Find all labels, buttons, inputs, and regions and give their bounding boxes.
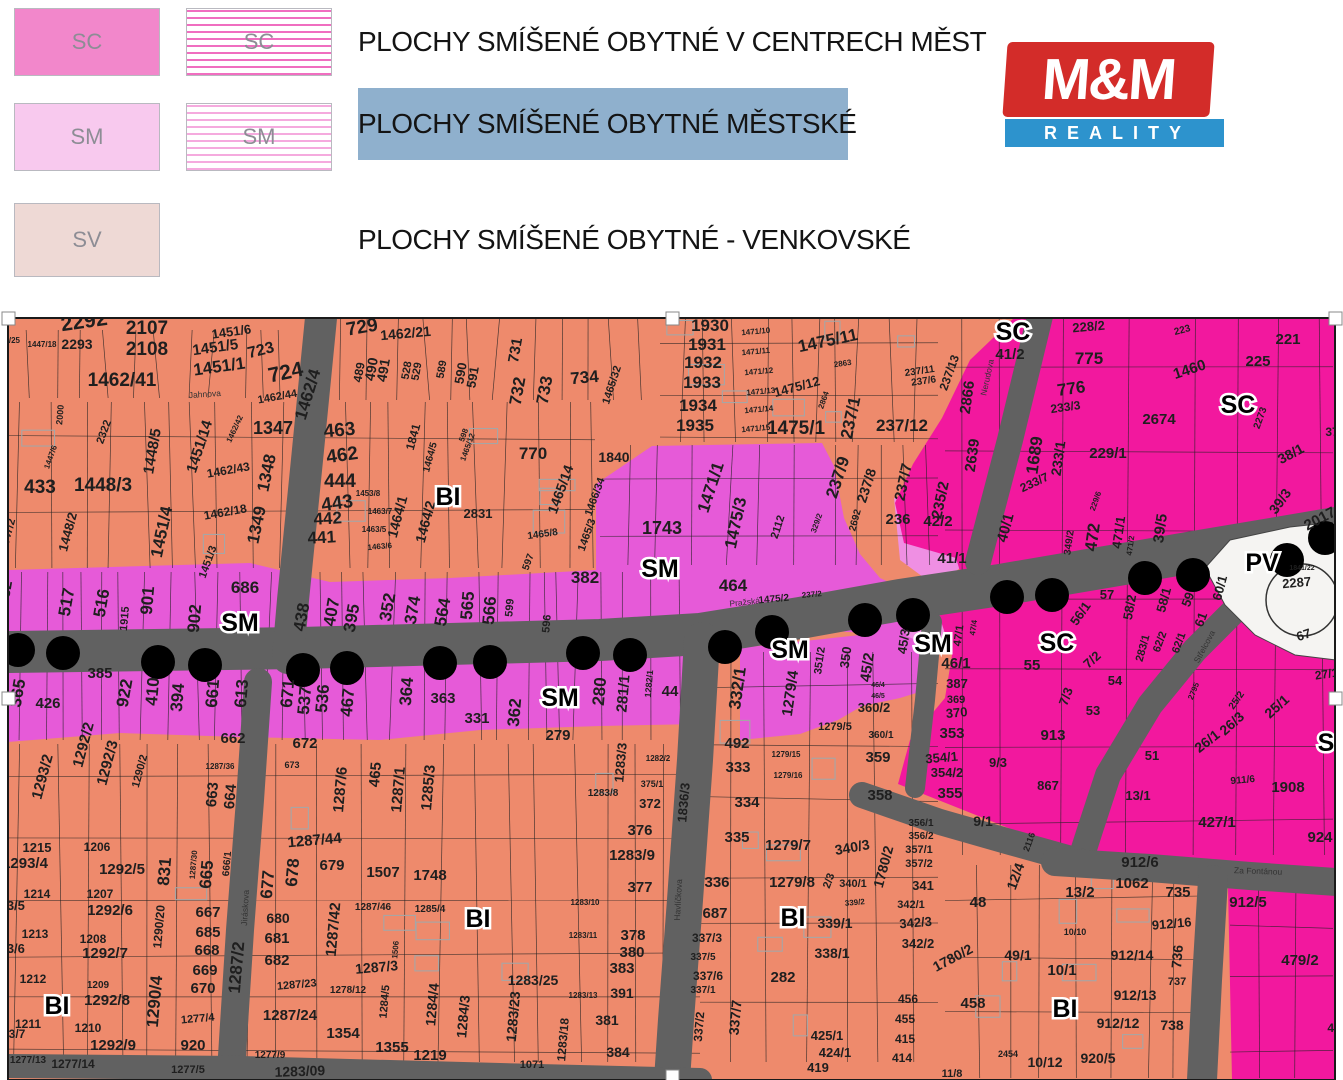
selection-handle[interactable] (1329, 692, 1342, 705)
parcel-number: 378 (620, 927, 645, 944)
parcel-number: 363 (430, 690, 455, 707)
parcel-number: 924 (1307, 829, 1333, 846)
parcel-number: 42/2 (923, 513, 952, 530)
parcel-number: 336 (704, 874, 729, 891)
zone-code-label: SM (541, 684, 579, 712)
transit-stop-dot (1176, 558, 1210, 592)
parcel-number: 911/6 (1230, 774, 1256, 787)
parcel-number: 463 (323, 419, 356, 443)
parcel-number: 13/2 (1065, 884, 1094, 901)
zone-code-label: SC (1221, 391, 1256, 419)
parcel-number: 384 (606, 1044, 630, 1060)
parcel-number: 668 (194, 942, 219, 959)
parcel-number: 770 (519, 444, 547, 463)
parcel-number: 1277/14 (51, 1057, 95, 1071)
parcel-number: 433 (24, 477, 56, 498)
parcel-number: 10/1 (1047, 962, 1076, 979)
parcel-number: 381 (595, 1012, 619, 1028)
parcel-number: 685 (195, 924, 220, 941)
parcel-number: 237/2 (801, 589, 822, 600)
parcel-number: 1285/4 (415, 904, 446, 915)
parcel-number: 53 (1086, 703, 1100, 718)
parcel-number: 1507 (366, 864, 399, 881)
transit-stop-dot (1035, 578, 1069, 612)
parcel-number: 599 (503, 598, 517, 617)
zone-code-label: BI (466, 905, 491, 933)
parcel-number: 1062 (1115, 875, 1148, 892)
parcel-number: 342/2 (902, 936, 935, 951)
parcel-number: 341 (912, 878, 934, 893)
parcel-number: 1743 (642, 518, 682, 538)
parcel-number: 41/1 (937, 550, 966, 567)
parcel-number: 17/25 (0, 336, 21, 345)
parcel-number: 49/1 (1004, 947, 1031, 963)
parcel-number: 735 (1165, 884, 1190, 901)
parcel-number: 279 (545, 727, 570, 744)
zone-code-label: SM (771, 636, 809, 664)
parcel-number: 901 (137, 586, 158, 616)
parcel-number: 355 (937, 785, 962, 802)
parcel-number: 1463/5 (362, 525, 387, 534)
parcel-number: 902 (184, 604, 205, 634)
transit-stop-dot (330, 651, 364, 685)
parcel-number: 229/1 (1089, 445, 1127, 462)
parcel-number: 46/5 (871, 693, 885, 700)
parcel-number: 2674 (1142, 411, 1176, 428)
parcel-number: 1506 (390, 940, 401, 959)
parcel-number: 387 (946, 676, 968, 691)
parcel-number: 1071 (520, 1059, 544, 1071)
parcel-number: 1292/6 (87, 902, 133, 919)
transit-stop-dot (1128, 561, 1162, 595)
parcel-number: 442 (313, 508, 342, 528)
parcel-number: 337/7 (726, 999, 745, 1036)
parcel-number: 1908 (1271, 779, 1304, 796)
parcel-number: 377 (627, 879, 652, 896)
zone-code-label: PV (1245, 549, 1279, 577)
parcel-number: 354/1 (925, 749, 959, 767)
parcel-number: 920 (180, 1037, 205, 1054)
parcel-number: 357/2 (905, 858, 933, 870)
parcel-number: 455 (895, 1012, 915, 1026)
parcel-number: 1934 (679, 396, 717, 415)
parcel-number: 228/2 (1072, 318, 1106, 336)
parcel-number: 1933 (683, 373, 721, 392)
parcel-number: 444 (324, 471, 356, 492)
parcel-number: 1355 (375, 1039, 408, 1056)
parcel-number: 679 (319, 857, 344, 874)
parcel-number: 1931 (688, 335, 726, 354)
parcel-number: 337/1 (690, 985, 715, 996)
parcel-number: 1287/24 (263, 1007, 318, 1024)
parcel-number: 479/2 (1281, 952, 1319, 969)
parcel-number: 734 (570, 367, 600, 388)
transit-stop-dot (1, 633, 35, 667)
parcel-number: 462 (325, 443, 359, 468)
parcel-number: 2287 (1282, 574, 1312, 591)
parcel-number: 666/1 (221, 850, 234, 876)
parcel-number: 1283/8 (588, 788, 619, 799)
parcel-number: 331 (464, 710, 489, 727)
parcel-number: 680 (266, 910, 290, 926)
road-912-down (1202, 880, 1213, 1080)
parcel-number: 356/1 (908, 818, 933, 829)
parcel-number: 2831 (464, 506, 493, 521)
parcel-number: 1935 (676, 416, 714, 435)
zoning-map[interactable]: 17/251447/1822922293210721081451/61451/5… (0, 0, 1343, 1080)
parcel-number: 1287/46 (355, 902, 392, 913)
parcel-number: 337/2 (691, 1011, 708, 1042)
parcel-number: 340/1 (839, 878, 867, 890)
parcel-number: 1283/13 (569, 991, 598, 1000)
parcel-number: 335 (724, 829, 749, 846)
parcel-number: 46/4 (871, 682, 885, 689)
page: SC SC PLOCHY SMÍŠENÉ OBYTNÉ V CENTRECH M… (0, 0, 1343, 1080)
parcel-number: 1207 (87, 887, 114, 901)
parcel-number: 1347 (253, 418, 293, 438)
parcel-number: 337/6 (693, 969, 723, 983)
parcel-number: 362 (504, 698, 525, 728)
parcel-number: 1462/41 (88, 370, 157, 391)
transit-stop-dot (566, 636, 600, 670)
zone-code-label: SC (1318, 729, 1343, 757)
zone-code-label: BI (45, 992, 70, 1020)
parcel-number: 831 (154, 857, 175, 887)
parcel-number: 2454 (998, 1049, 1018, 1059)
parcel-number: 678 (282, 858, 303, 888)
transit-stop-dot (990, 580, 1024, 614)
parcel-number: 55 (1024, 657, 1041, 674)
parcel-number: 339/1 (817, 915, 852, 931)
parcel-number: 775 (1075, 349, 1103, 368)
parcel-number: 492 (724, 735, 749, 752)
transit-stop-dot (141, 645, 175, 679)
parcel-number: 1209 (87, 980, 110, 991)
parcel-number: 10/10 (1064, 927, 1087, 937)
parcel-number: 280 (589, 677, 610, 707)
parcel-number: 426 (35, 695, 60, 712)
parcel-number: 333 (725, 759, 750, 776)
parcel-number: 1292/5 (99, 861, 145, 878)
parcel-number: 237/12 (876, 416, 928, 435)
parcel-number: 737 (1168, 976, 1186, 988)
parcel-number: 464 (719, 576, 748, 595)
parcel-number: 669 (192, 962, 217, 979)
parcel-number: 1279/16 (774, 771, 803, 780)
parcel-number: 1293/7 (0, 1027, 26, 1041)
parcel-number: 1287/36 (206, 762, 235, 771)
parcel-number: 1293/5 (0, 898, 25, 913)
parcel-number: 912/13 (1114, 987, 1157, 1003)
transit-stop-dot (613, 638, 647, 672)
transit-stop-dot (473, 645, 507, 679)
parcel-number: 1277/9 (255, 1050, 286, 1061)
parcel-number: 441 (307, 527, 336, 547)
parcel-number: 681 (264, 930, 289, 947)
zone-code-label: SC (996, 318, 1031, 346)
zone-code-label: SM (221, 609, 259, 637)
parcel-number: 661 (202, 679, 223, 709)
zone-code-label: SM (914, 630, 952, 658)
parcel-number: 1277/5 (171, 1064, 205, 1076)
selection-handle[interactable] (666, 312, 679, 325)
parcel-number: 1279/15 (772, 750, 801, 759)
parcel-number: 1447/18 (28, 340, 57, 349)
parcel-number: 677 (257, 870, 278, 900)
parcel-number: 414 (892, 1051, 912, 1065)
parcel-number: 867 (1037, 778, 1059, 793)
parcel-number: 1292/7 (82, 945, 128, 962)
parcel-number: 1214 (24, 887, 51, 901)
transit-stop-dot (848, 603, 882, 637)
parcel-number: 913 (1040, 727, 1065, 744)
parcel-number: 1292/8 (84, 992, 130, 1009)
parcel-number: 662 (220, 730, 245, 747)
parcel-number: 1283/9 (609, 847, 655, 864)
parcel-number: 427/1 (1198, 814, 1236, 831)
parcel-number: 1293/6 (0, 941, 25, 956)
parcel-number: 1283/11 (569, 931, 598, 940)
parcel-number: 391 (610, 985, 634, 1001)
parcel-number: 1208 (80, 932, 107, 946)
parcel-number: 1210 (75, 1021, 102, 1035)
parcel-number: 364 (396, 676, 417, 706)
zone-code-label: BI (436, 483, 461, 511)
parcel-number: 687 (702, 905, 727, 922)
parcel-number: 337/3 (692, 931, 722, 945)
parcel-number: 334 (734, 794, 760, 811)
parcel-number: 383 (609, 960, 634, 977)
parcel-number: 425/1 (811, 1028, 844, 1043)
parcel-number: 54 (1108, 673, 1123, 688)
parcel-number: 419 (807, 1060, 829, 1075)
parcel-number: 1354 (326, 1025, 360, 1042)
zone-code-label: BI (781, 904, 806, 932)
selection-handle[interactable] (2, 692, 15, 705)
parcel-number: 613 (231, 679, 252, 709)
street-name: Jiráskova (239, 889, 251, 926)
parcel-number: 1215 (23, 840, 52, 855)
parcel-number: 1915 (118, 606, 132, 631)
parcel-number: 370 (945, 704, 968, 721)
parcel-number: 415 (895, 1032, 915, 1046)
parcel-number: 394 (167, 682, 188, 712)
parcel-number: 13/1 (1125, 788, 1150, 803)
parcel-number: 41/2 (995, 346, 1024, 363)
parcel-number: 339/2 (844, 897, 865, 908)
parcel-number: 1283/09 (274, 1062, 325, 1080)
parcel-number: 9/1 (973, 813, 993, 829)
parcel-number: 682 (264, 952, 289, 969)
parcel-number: 359 (865, 749, 890, 766)
zone-code-label: BI (1053, 995, 1078, 1023)
parcel-number: 342/1 (897, 899, 925, 911)
parcel-number: 1279/7 (765, 837, 811, 854)
selection-handle[interactable] (1329, 312, 1342, 325)
parcel-number: 356/2 (908, 831, 933, 842)
parcel-number: 1282/2 (646, 754, 671, 763)
parcel-number: 465 (366, 761, 385, 787)
parcel-number: 1277/13 (10, 1055, 47, 1066)
street-name: Za Fontánou (1234, 865, 1283, 877)
parcel-number: 1453/8 (356, 489, 381, 498)
parcel-number: 372 (639, 796, 661, 811)
parcel-number: 467 (337, 688, 358, 718)
parcel-number: 236 (885, 511, 910, 528)
selection-handle[interactable] (666, 1070, 679, 1080)
parcel-number: 382 (571, 568, 599, 587)
parcel-number: 375/1 (641, 779, 664, 789)
parcel-number: 360/1 (868, 730, 893, 741)
parcel-number: 665 (196, 860, 217, 890)
parcel-number: 1748 (413, 867, 446, 884)
parcel-number: 1283/25 (508, 972, 559, 988)
parcel-number: 1448/3 (74, 475, 132, 496)
parcel-number: 1841/22 (1289, 565, 1314, 572)
parcel-number: 410 (142, 677, 163, 707)
parcel-number: 1283/10 (571, 898, 600, 907)
parcel-number: 736 (1168, 944, 1186, 969)
zone-code-label: SC (1040, 629, 1075, 657)
parcel-number: 338/1 (814, 945, 849, 961)
parcel-number: 673 (284, 760, 299, 770)
parcel-number: 1206 (84, 840, 111, 854)
parcel-number: 456 (898, 992, 918, 1006)
parcel-number: 424/1 (819, 1045, 852, 1060)
parcel-number: 342/3 (899, 914, 933, 932)
parcel-number: 1279/8 (769, 874, 815, 891)
parcel-number: 920/5 (1080, 1050, 1115, 1066)
parcel-number: 11/8 (942, 1068, 963, 1080)
parcel-number: 357/1 (905, 844, 933, 856)
parcel-number: 376 (627, 822, 652, 839)
parcel-number: 664 (221, 783, 240, 810)
parcel-number: 912/6 (1121, 854, 1159, 871)
parcel-number: 1212 (20, 972, 47, 986)
parcel-number: 1279/5 (818, 721, 852, 733)
transit-stop-dot (708, 630, 742, 664)
parcel-number: 912/5 (1229, 894, 1267, 911)
parcel-number: 2108 (126, 339, 168, 360)
parcel-number: 1292/9 (90, 1037, 136, 1054)
transit-stop-dot (423, 646, 457, 680)
parcel-number: 596 (540, 614, 554, 633)
parcel-number: 44 (662, 683, 679, 700)
parcel-number: 1278/12 (330, 985, 367, 996)
transit-stop-dot (188, 648, 222, 682)
parcel-number: 912/14 (1111, 947, 1154, 963)
parcel-number: 385 (87, 665, 112, 682)
transit-stop-dot (896, 598, 930, 632)
parcel-number: 360/2 (858, 700, 891, 715)
parcel-number: 350 (837, 646, 855, 670)
parcel-number: 37 (1325, 425, 1339, 439)
parcel-number: 2107 (126, 318, 168, 339)
parcel-number: 536 (312, 684, 333, 714)
parcel-number: 2000 (54, 404, 66, 425)
parcel-number: 1475/1 (767, 418, 826, 439)
parcel-number: 48 (970, 894, 987, 911)
parcel-number: 472 (1081, 522, 1104, 553)
parcel-number: 1840 (598, 449, 629, 465)
parcel-number: 738 (1160, 1017, 1184, 1033)
parcel-number: 282 (770, 969, 795, 986)
parcel-number: 354/2 (931, 765, 964, 780)
parcel-number: 458 (960, 995, 985, 1012)
parcel-number: 686 (231, 578, 259, 597)
selection-handle[interactable] (2, 312, 15, 325)
zone-code-label: SM (641, 555, 679, 583)
parcel-number: 565 (457, 591, 478, 621)
parcel-number: 912/12 (1097, 1015, 1140, 1031)
transit-stop-dot (46, 636, 80, 670)
parcel-number: 667 (195, 904, 220, 921)
parcel-number: 353 (939, 725, 964, 742)
parcel-number: 672 (292, 735, 317, 752)
parcel-number: 57 (1100, 587, 1114, 602)
parcel-number: 670 (190, 980, 215, 997)
parcel-number: 1213 (22, 927, 49, 941)
parcel-number: 2293 (61, 336, 92, 352)
parcel-number: 380 (619, 944, 644, 961)
parcel-number: 566 (479, 596, 500, 626)
parcel-number: 10/12 (1027, 1054, 1062, 1070)
parcel-number: 51 (1145, 748, 1159, 763)
parcel-number: 281/1 (613, 674, 633, 713)
parcel-number: 225 (1245, 353, 1270, 370)
parcel-number: 1219 (413, 1047, 446, 1064)
parcel-number: 663 (203, 781, 222, 807)
parcel-number: 221 (1275, 331, 1300, 348)
parcel-number: 1932 (684, 353, 722, 372)
parcel-number: 9/3 (989, 755, 1007, 770)
parcel-number: 358 (867, 787, 892, 804)
parcel-number: 1293/4 (2, 855, 49, 872)
parcel-number: 776 (1056, 377, 1087, 400)
road-bottom (8, 1066, 700, 1080)
parcel-number: 337/5 (690, 952, 715, 963)
